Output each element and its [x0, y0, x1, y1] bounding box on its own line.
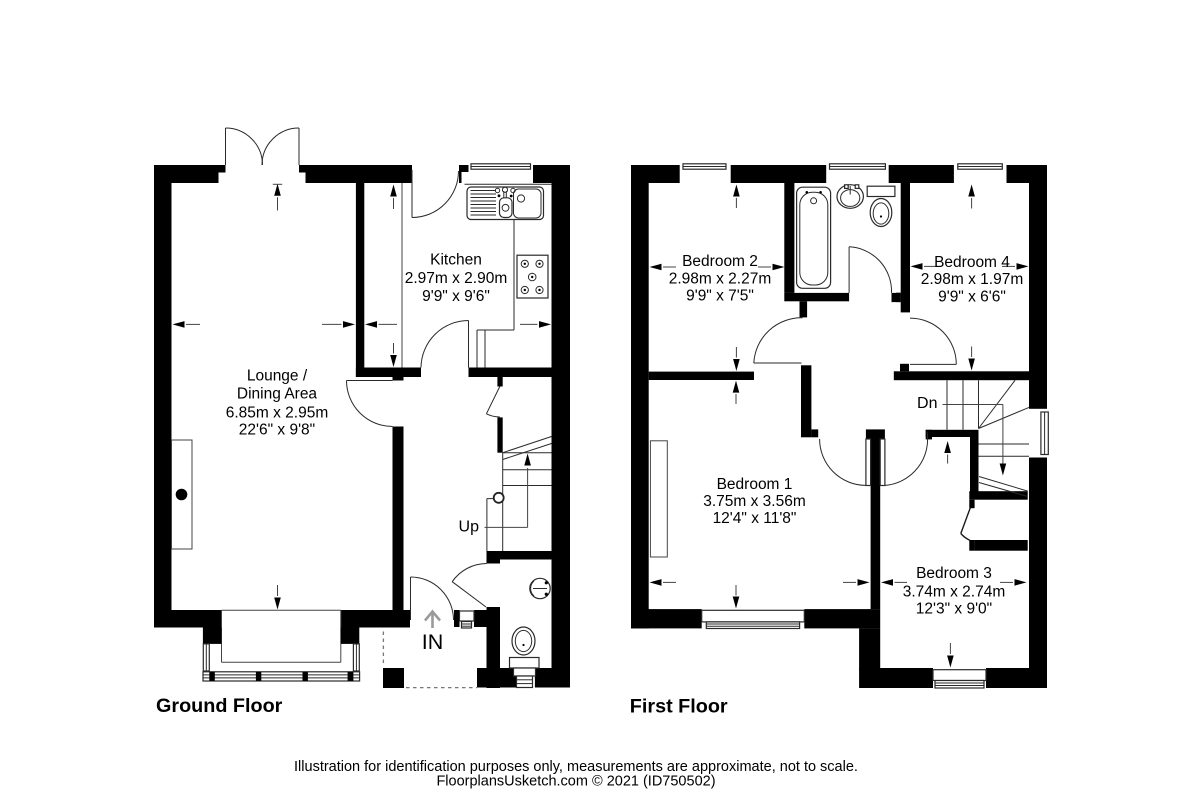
- svg-text:Dining Area: Dining Area: [237, 386, 318, 403]
- svg-text:2.98m x 1.97m: 2.98m x 1.97m: [921, 271, 1024, 288]
- svg-text:Bedroom 3: Bedroom 3: [916, 565, 992, 582]
- svg-text:First Floor: First Floor: [630, 696, 728, 718]
- svg-text:22'6" x 9'8": 22'6" x 9'8": [239, 422, 315, 439]
- svg-text:9'9" x 7'5": 9'9" x 7'5": [686, 288, 754, 305]
- svg-text:12'3" x 9'0": 12'3" x 9'0": [916, 601, 992, 618]
- svg-text:Lounge /: Lounge /: [247, 368, 308, 385]
- svg-text:Illustration for identificatio: Illustration for identification purposes…: [294, 759, 858, 775]
- svg-text:Bedroom 2: Bedroom 2: [682, 253, 758, 270]
- svg-text:2.98m x 2.27m: 2.98m x 2.27m: [669, 270, 772, 287]
- svg-text:IN: IN: [422, 630, 444, 654]
- svg-text:FloorplansUsketch.com © 2021 (: FloorplansUsketch.com © 2021 (ID750502): [436, 774, 715, 790]
- svg-text:Dn: Dn: [917, 395, 937, 412]
- svg-text:6.85m x 2.95m: 6.85m x 2.95m: [226, 404, 329, 421]
- svg-text:Ground Floor: Ground Floor: [156, 695, 283, 717]
- svg-text:3.75m x 3.56m: 3.75m x 3.56m: [703, 493, 806, 510]
- svg-text:9'9" x 6'6": 9'9" x 6'6": [938, 289, 1006, 306]
- svg-text:Bedroom 4: Bedroom 4: [934, 254, 1010, 271]
- svg-text:Kitchen: Kitchen: [430, 252, 482, 269]
- svg-text:Bedroom 1: Bedroom 1: [717, 476, 793, 493]
- svg-text:12'4" x 11'8": 12'4" x 11'8": [713, 510, 797, 527]
- svg-text:3.74m x 2.74m: 3.74m x 2.74m: [903, 583, 1006, 600]
- svg-text:9'9" x 9'6": 9'9" x 9'6": [422, 288, 490, 305]
- svg-text:Up: Up: [459, 519, 480, 536]
- svg-text:2.97m x 2.90m: 2.97m x 2.90m: [405, 270, 508, 287]
